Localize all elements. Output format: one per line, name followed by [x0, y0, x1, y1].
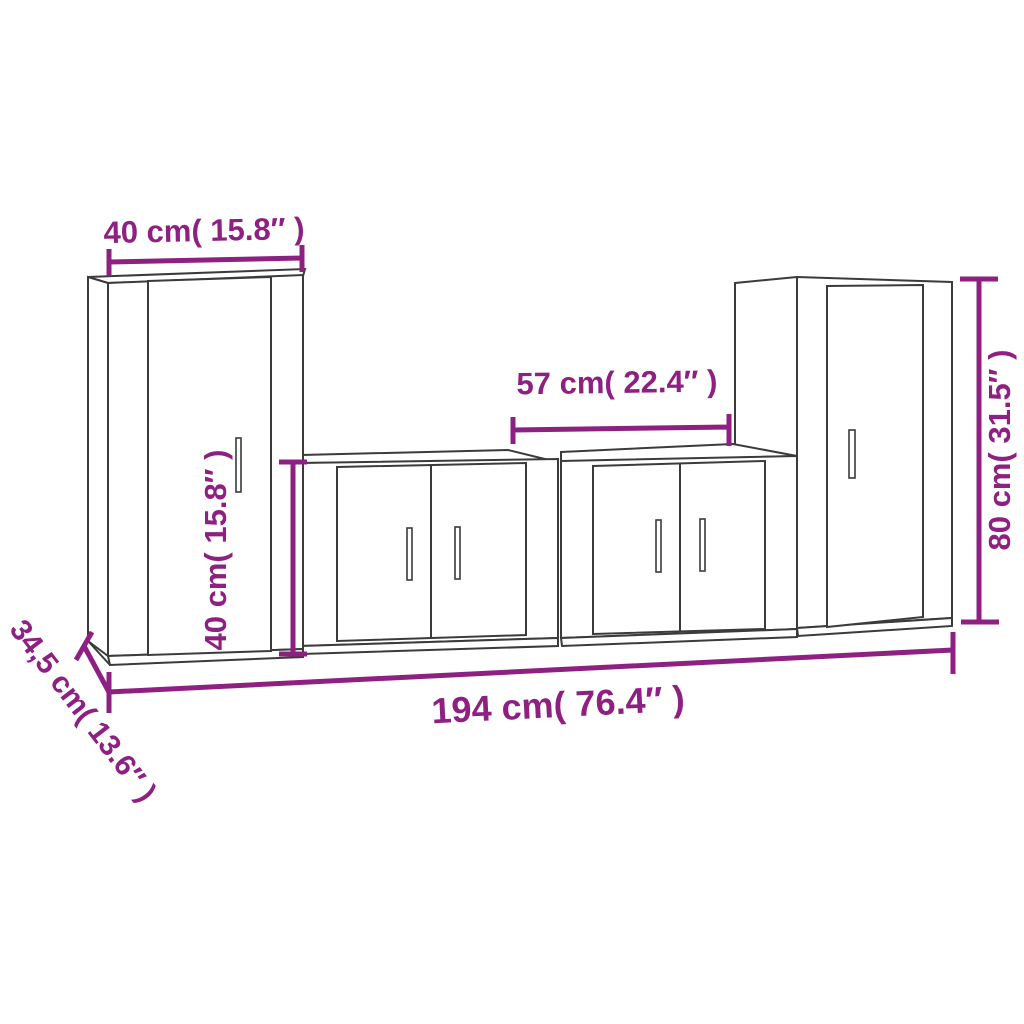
- door-handle: [849, 430, 855, 478]
- dimension-line-middle-width: [513, 414, 729, 446]
- dimension-label-top-width: 40 cm( 15.8″ ): [103, 211, 305, 250]
- dimension-label-right-height: 80 cm( 31.5″ ): [982, 350, 1017, 551]
- door-handle: [236, 438, 241, 492]
- door-handle: [455, 527, 460, 579]
- wide-cabinet-left: [300, 450, 558, 654]
- door-handle: [700, 519, 705, 571]
- door-handle: [407, 528, 412, 580]
- dimension-middle-width: 57 cm( 22.4″ ): [513, 364, 729, 446]
- dimension-label-total-width: 194 cm( 76.4″ ): [431, 678, 686, 732]
- furniture-line-drawing: 40 cm( 15.8″ ) 57 cm( 22.4″ ) 40 cm( 15.…: [0, 0, 1024, 1024]
- wide-cabinet-right: [561, 444, 797, 646]
- dimension-diagram: 40 cm( 15.8″ ) 57 cm( 22.4″ ) 40 cm( 15.…: [0, 0, 1024, 1024]
- dimension-right-height: 80 cm( 31.5″ ): [960, 279, 1017, 622]
- dimension-label-left-height: 40 cm( 15.8″ ): [198, 450, 233, 651]
- cabinet-door: [827, 285, 923, 627]
- dimension-label-middle-width: 57 cm( 22.4″ ): [516, 364, 717, 402]
- left-tall-cabinet: [88, 269, 305, 665]
- door-handle: [656, 520, 661, 572]
- dimension-top-width: 40 cm( 15.8″ ): [103, 211, 305, 276]
- cabinet-side-panel: [88, 277, 108, 656]
